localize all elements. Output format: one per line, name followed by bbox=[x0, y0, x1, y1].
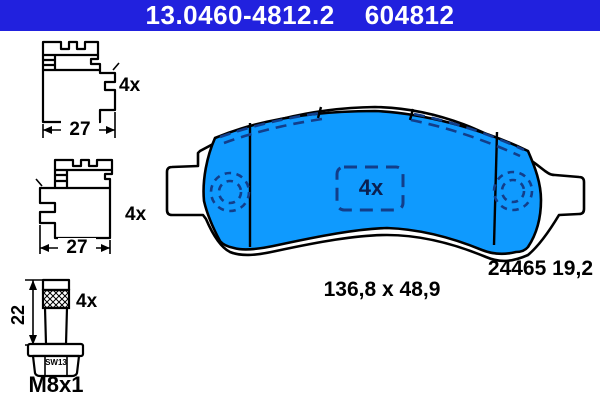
clip-top-right-zigzag bbox=[91, 55, 100, 70]
drawing-sheet: 13.0460-4812.2 604812 4x 27 4x 27 bbox=[0, 0, 600, 400]
clip-top-qty-label: 4x bbox=[119, 76, 140, 95]
bolt-cap bbox=[43, 280, 69, 290]
clip-top-width-label: 27 bbox=[61, 120, 99, 139]
bolt-thread bbox=[43, 290, 69, 308]
bolt-thread-label: M8x1 bbox=[14, 374, 98, 396]
pad-dimensions-label: 136,8 x 48,9 bbox=[298, 279, 466, 300]
title-bar: 13.0460-4812.2 604812 bbox=[0, 0, 600, 31]
article-number: 604812 bbox=[365, 0, 455, 31]
clip-bottom-width-label: 27 bbox=[58, 238, 96, 257]
clip-bottom-qty-label: 4x bbox=[125, 205, 146, 224]
clip-top-left-fingers bbox=[43, 55, 55, 70]
bolt-length-label: 22 bbox=[9, 297, 27, 333]
clip-top-comb bbox=[43, 42, 98, 55]
bolt-shank bbox=[45, 308, 67, 344]
part-number: 13.0460-4812.2 bbox=[146, 0, 335, 31]
bolt-flange bbox=[28, 344, 83, 356]
clip-bottom-tick bbox=[36, 179, 42, 186]
clip-top-tick bbox=[113, 63, 119, 70]
clip-bottom-right-zigzag bbox=[105, 170, 112, 188]
bolt-wrench-size-label: SW13 bbox=[38, 359, 74, 367]
clip-bottom-body bbox=[40, 188, 110, 238]
pad-qty-label: 4x bbox=[348, 177, 394, 199]
bolt-qty-label: 4x bbox=[76, 292, 97, 311]
clip-top-body bbox=[43, 70, 115, 122]
clip-bottom-comb bbox=[55, 160, 112, 170]
clip-bottom-left-fingers bbox=[55, 170, 67, 188]
pad-wva-thickness-label: 24465 19,2 bbox=[455, 258, 593, 279]
